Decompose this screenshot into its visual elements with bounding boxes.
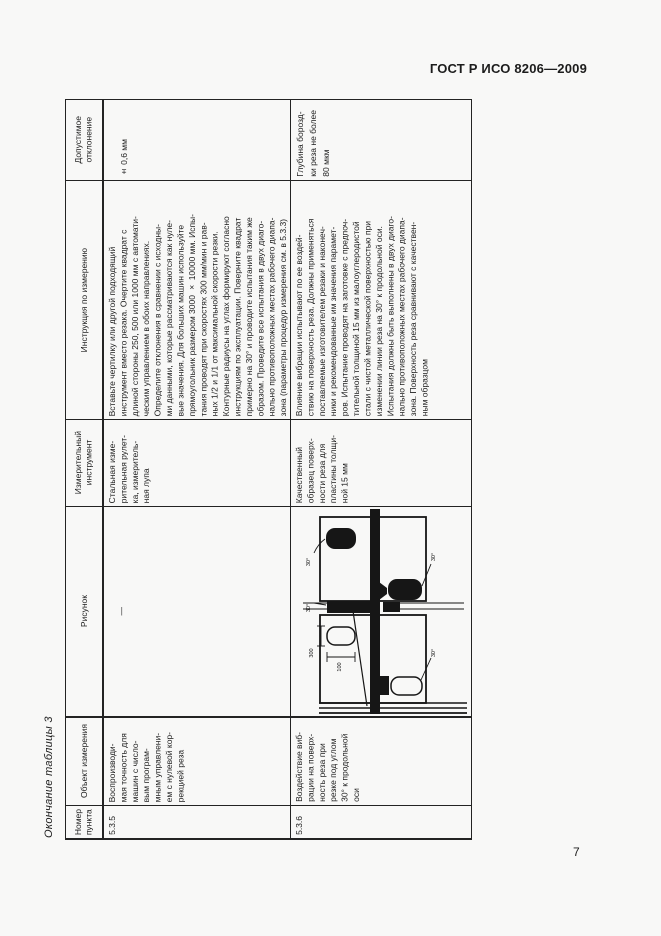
header-instruction-label: Инструкция по измерению bbox=[79, 248, 90, 352]
instruction-text: Влияние вибрации испытывают по ее воздей… bbox=[294, 216, 431, 416]
standard-number-header: ГОСТ Р ИСО 8206—2009 bbox=[430, 61, 587, 76]
instruction-text: Вставьте чертилку или другой подходящий … bbox=[107, 214, 290, 416]
tool-text: Стальная изме- рительная рулет- ка, изме… bbox=[107, 435, 153, 503]
table-continuation-caption: Окончание таблицы 3 bbox=[42, 688, 57, 838]
angle-label: 30° bbox=[306, 604, 312, 612]
cutting-test-diagram: 30° 30° 30° 30° 300 100 bbox=[291, 507, 469, 716]
item-number: 5.3.5 bbox=[107, 816, 118, 835]
cell-5-3-5-tolerance: ± 0,6 мм bbox=[104, 100, 291, 181]
cell-5-3-6-tool: Качественный образец поверх- ности реза … bbox=[291, 420, 471, 507]
tool-text: Качественный образец поверх- ности реза … bbox=[294, 435, 351, 503]
cell-5-3-6-figure: 30° 30° 30° 30° 300 100 bbox=[291, 507, 471, 718]
measurements-table: Допустимое отклонение ± 0,6 мм Глубина б… bbox=[65, 99, 472, 840]
cell-5-3-5-tool: Стальная изме- рительная рулет- ка, изме… bbox=[104, 420, 291, 507]
tolerance-value: Глубина борозд- ки реза не более 80 мкм bbox=[294, 110, 333, 177]
tolerance-value: ± 0,6 мм bbox=[118, 139, 131, 177]
angle-label: 30° bbox=[431, 553, 437, 561]
header-measured-object-label: Объект измерения bbox=[79, 724, 90, 798]
page-number: 7 bbox=[573, 845, 580, 859]
cell-5-3-6-item-number: 5.3.6 bbox=[291, 806, 471, 838]
dimension-label: 300 bbox=[309, 648, 315, 657]
header-measuring-tool: Измерительный инструмент bbox=[66, 420, 104, 507]
header-measured-object: Объект измерения bbox=[66, 718, 104, 806]
cell-5-3-6-instruction: Влияние вибрации испытывают по ее воздей… bbox=[291, 181, 471, 420]
cell-5-3-5-item-number: 5.3.5 bbox=[104, 806, 291, 838]
angle-label: 30° bbox=[306, 558, 312, 566]
header-item-number: Номер пункта bbox=[66, 806, 104, 838]
cell-5-3-6-object: Воздействие виб- рации на поверх- ность … bbox=[291, 718, 471, 806]
no-figure-dash: — bbox=[116, 607, 127, 616]
item-number: 5.3.6 bbox=[294, 816, 305, 835]
dimension-label: 100 bbox=[337, 662, 343, 671]
header-figure-label: Рисунок bbox=[79, 595, 90, 627]
object-text: Воспроизводи- мая точность для машин с ч… bbox=[107, 732, 187, 802]
header-measuring-tool-label: Измерительный инструмент bbox=[73, 431, 94, 494]
angle-label: 30° bbox=[431, 649, 437, 657]
header-figure: Рисунок bbox=[66, 507, 104, 718]
cell-5-3-6-tolerance: Глубина борозд- ки реза не более 80 мкм bbox=[291, 100, 471, 181]
object-text: Воздействие виб- рации на поверх- ность … bbox=[294, 732, 362, 802]
header-instruction: Инструкция по измерению bbox=[66, 181, 104, 420]
header-tolerance: Допустимое отклонение bbox=[66, 100, 104, 181]
document-page: ГОСТ Р ИСО 8206—2009 Окончание таблицы 3… bbox=[0, 0, 661, 936]
header-item-number-label: Номер пункта bbox=[73, 809, 94, 835]
cell-5-3-5-object: Воспроизводи- мая точность для машин с ч… bbox=[104, 718, 291, 806]
cell-5-3-5-figure: — bbox=[104, 507, 291, 718]
cell-5-3-5-instruction: Вставьте чертилку или другой подходящий … bbox=[104, 181, 291, 420]
header-tolerance-label: Допустимое отклонение bbox=[73, 116, 94, 164]
